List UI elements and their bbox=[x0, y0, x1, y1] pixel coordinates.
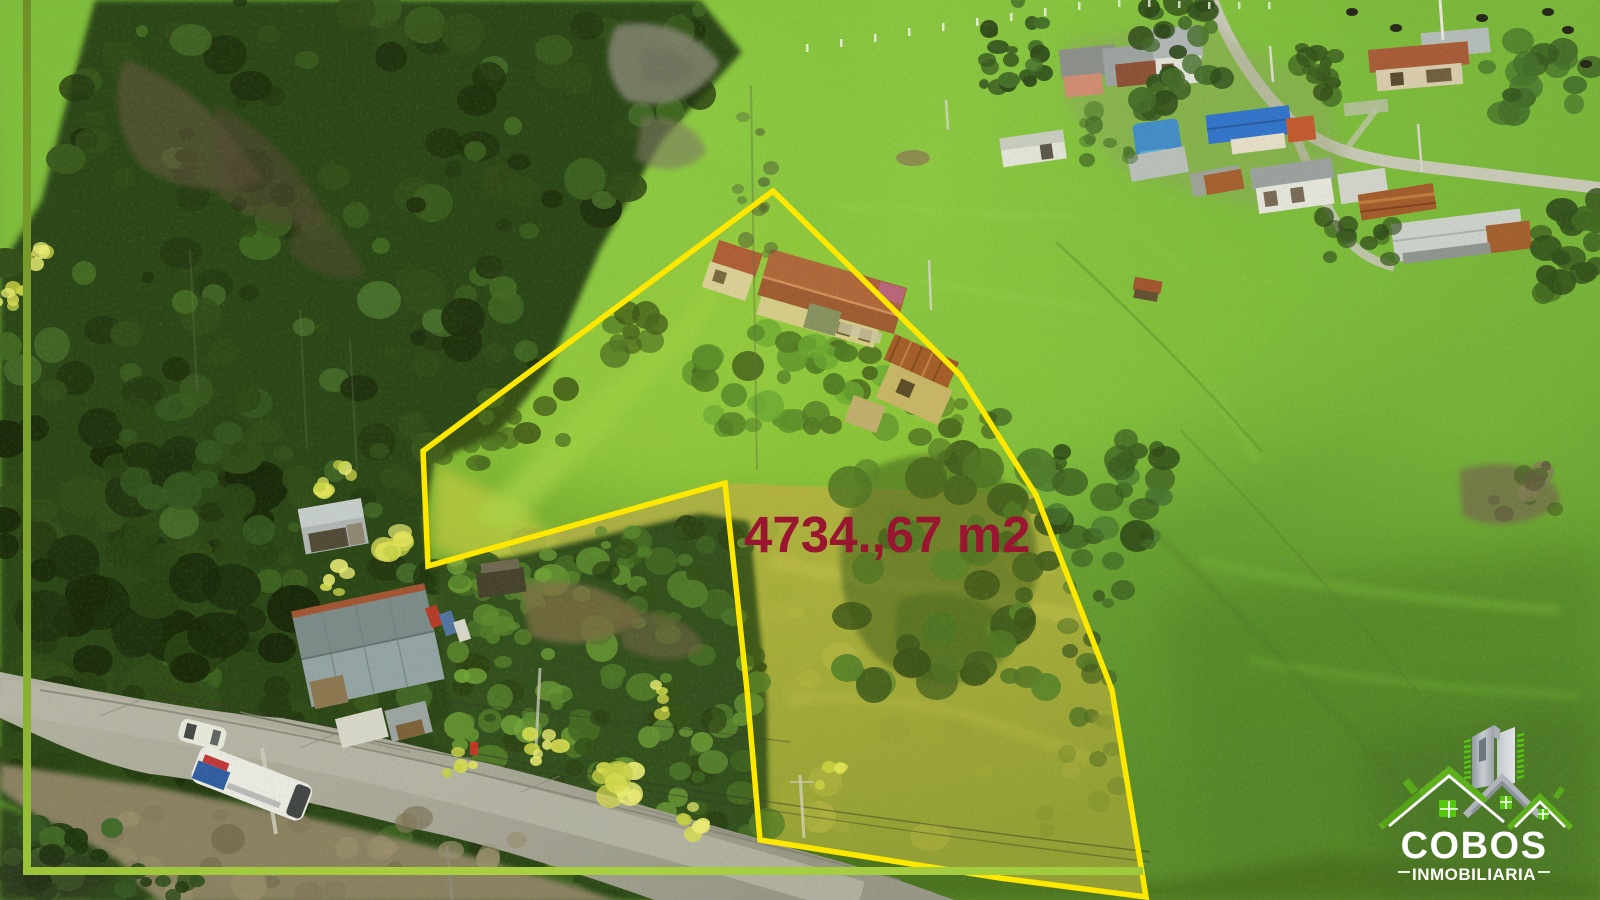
svg-text:INMOBILIARIA: INMOBILIARIA bbox=[1412, 865, 1536, 884]
svg-text:4734.,67 m2: 4734.,67 m2 bbox=[744, 506, 1030, 563]
svg-text:COBOS: COBOS bbox=[1401, 825, 1548, 867]
